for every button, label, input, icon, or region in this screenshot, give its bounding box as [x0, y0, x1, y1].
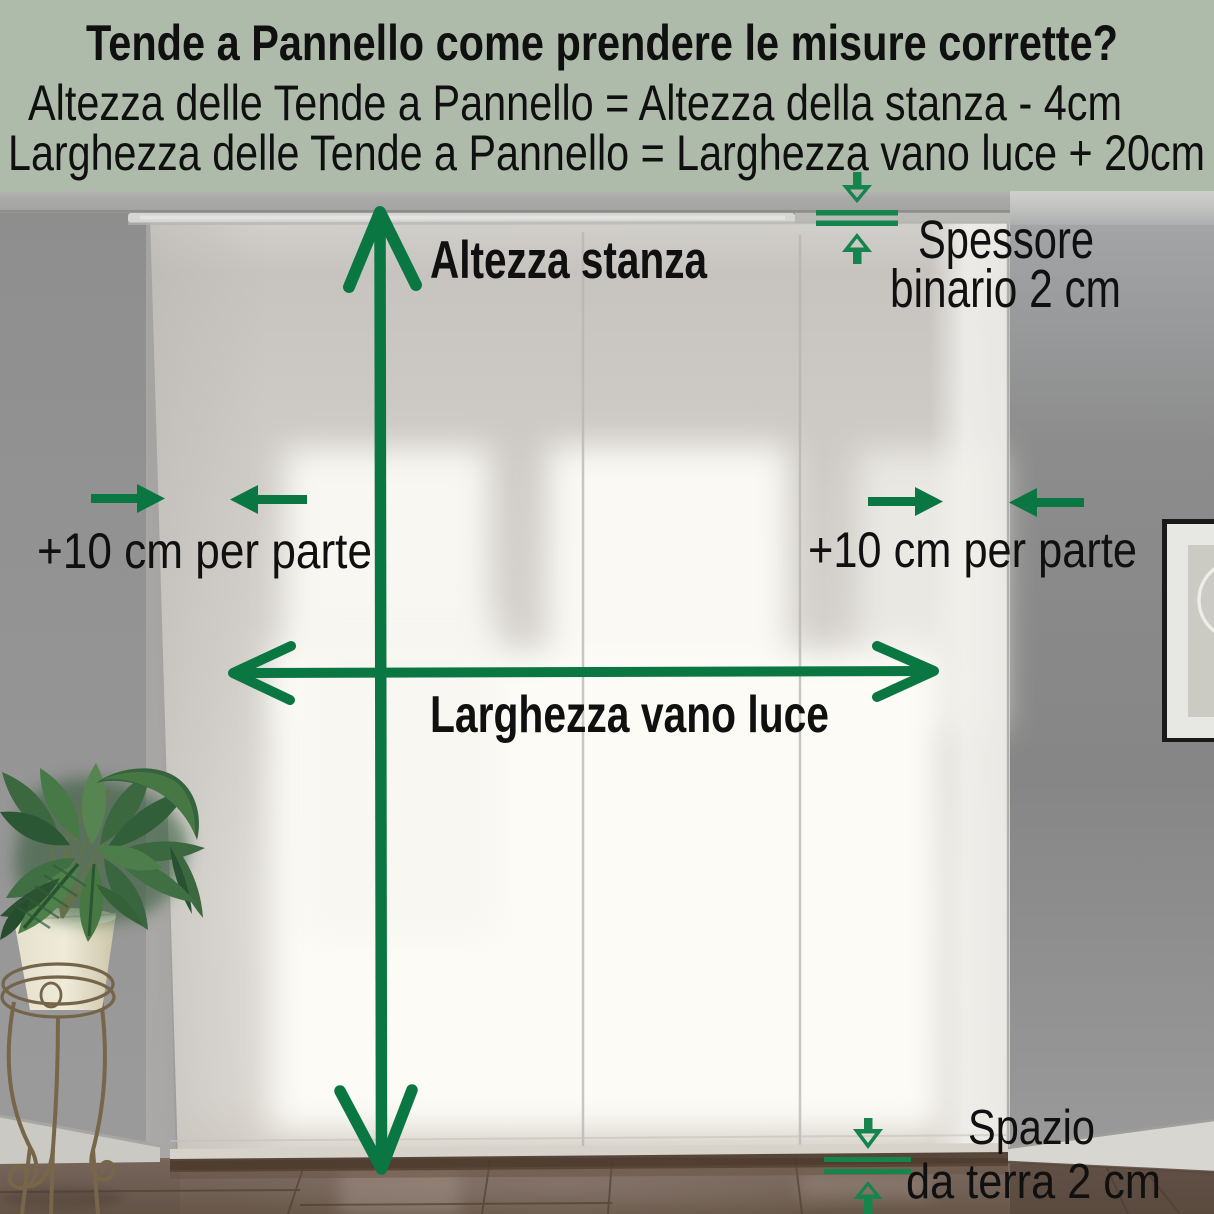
svg-text:Tende a Pannello come prendere: Tende a Pannello come prendere le misure… [86, 15, 1118, 71]
svg-text:+10 cm per parte: +10 cm per parte [37, 523, 372, 579]
svg-text:Larghezza vano luce: Larghezza vano luce [430, 686, 829, 744]
svg-text:+10 cm per parte: +10 cm per parte [808, 522, 1137, 578]
svg-text:binario 2 cm: binario 2 cm [890, 259, 1121, 319]
svg-text:Larghezza delle Tende a Pannel: Larghezza delle Tende a Pannello = Largh… [8, 125, 1205, 181]
svg-text:Altezza stanza: Altezza stanza [430, 231, 707, 290]
svg-text:da terra 2 cm: da terra 2 cm [906, 1155, 1161, 1209]
svg-text:Altezza delle Tende a Pannello: Altezza delle Tende a Pannello = Altezza… [28, 75, 1122, 131]
svg-text:Spazio: Spazio [968, 1101, 1095, 1155]
